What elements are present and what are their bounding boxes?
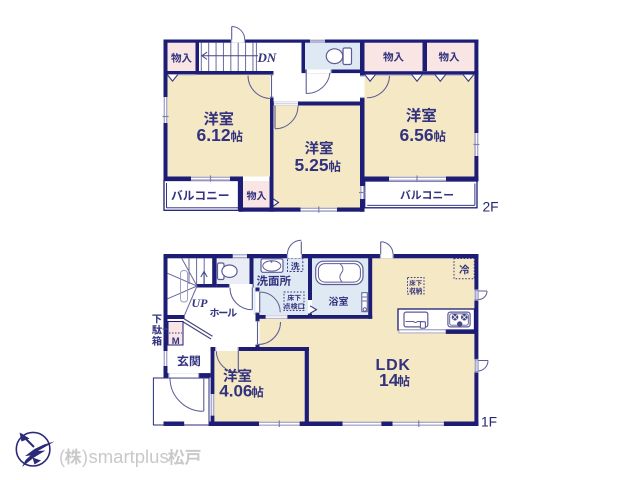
svg-text:1F: 1F [481, 414, 497, 429]
svg-text:6.56: 6.56 [400, 125, 434, 145]
svg-text:smartplus: smartplus [89, 446, 169, 467]
svg-text:6.12: 6.12 [197, 125, 231, 145]
svg-text:M: M [172, 336, 180, 347]
svg-text:(: ( [59, 447, 65, 467]
svg-text:): ) [82, 447, 88, 467]
svg-text:2F: 2F [483, 200, 499, 215]
svg-text:14: 14 [379, 370, 399, 390]
svg-text:5.25: 5.25 [295, 155, 329, 175]
svg-text:UP: UP [192, 296, 209, 310]
svg-text:DN: DN [257, 50, 277, 65]
svg-text:4.06: 4.06 [219, 382, 252, 401]
